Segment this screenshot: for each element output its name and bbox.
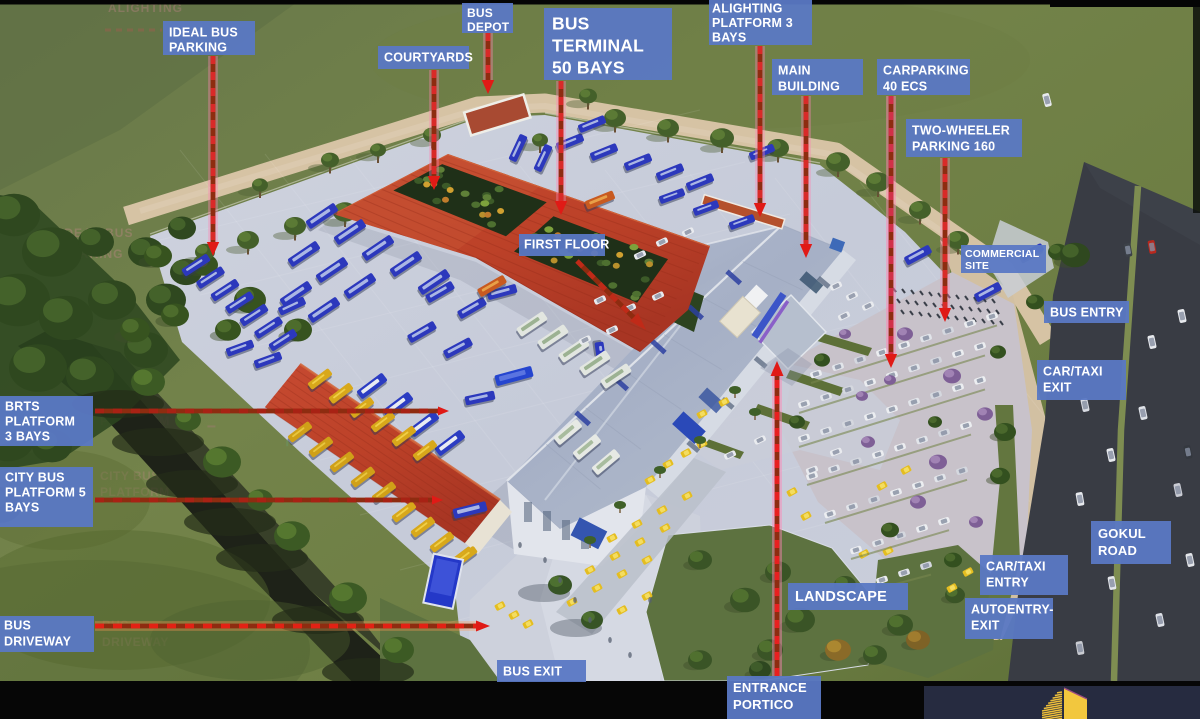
svg-text:CAR/TAXI: CAR/TAXI	[986, 560, 1046, 574]
svg-text:BUS: BUS	[467, 6, 493, 20]
svg-text:ALIGHTING: ALIGHTING	[712, 2, 783, 16]
svg-text:AUTOENTRY-: AUTOENTRY-	[971, 603, 1054, 617]
svg-text:BAYS: BAYS	[712, 31, 746, 45]
svg-text:BUS: BUS	[552, 13, 590, 33]
svg-text:COURTYARDS: COURTYARDS	[384, 51, 473, 65]
svg-text:SITE: SITE	[965, 260, 989, 272]
svg-text:FIRST FLOOR: FIRST FLOOR	[524, 238, 610, 252]
svg-text:ENTRY: ENTRY	[986, 576, 1029, 590]
svg-text:COMMERCIAL: COMMERCIAL	[965, 248, 1040, 260]
svg-text:BRTS: BRTS	[5, 400, 40, 414]
svg-text:BUS EXIT: BUS EXIT	[503, 665, 562, 679]
svg-text:TERMINAL: TERMINAL	[552, 35, 644, 55]
svg-text:GOKUL: GOKUL	[1098, 526, 1146, 541]
svg-text:PARKING 160: PARKING 160	[912, 140, 995, 154]
svg-text:BUS ENTRY: BUS ENTRY	[1050, 306, 1124, 320]
svg-text:CAR/TAXI: CAR/TAXI	[1043, 365, 1103, 379]
svg-text:CITY BUS: CITY BUS	[5, 471, 65, 485]
svg-text:TWO-WHEELER: TWO-WHEELER	[912, 124, 1010, 138]
svg-text:PLATFORM 5: PLATFORM 5	[5, 486, 86, 500]
svg-text:BUS: BUS	[4, 619, 31, 633]
svg-text:ENTRANCE: ENTRANCE	[733, 680, 807, 695]
svg-text:ROAD: ROAD	[1098, 543, 1137, 558]
svg-text:IDEAL BUS: IDEAL BUS	[169, 26, 238, 40]
svg-text:EXIT: EXIT	[971, 619, 1000, 633]
svg-text:PLATFORM 3: PLATFORM 3	[712, 16, 793, 30]
svg-text:40 ECS: 40 ECS	[883, 80, 927, 94]
svg-text:PARKING: PARKING	[169, 41, 227, 55]
svg-text:BUILDING: BUILDING	[778, 80, 840, 94]
svg-text:DEPOT: DEPOT	[467, 20, 510, 34]
svg-text:CARPARKING: CARPARKING	[883, 64, 969, 78]
svg-text:DRIVEWAY: DRIVEWAY	[4, 635, 72, 649]
svg-text:PORTICO: PORTICO	[733, 697, 794, 712]
svg-text:LANDSCAPE: LANDSCAPE	[795, 589, 887, 605]
svg-text:BAYS: BAYS	[5, 501, 39, 515]
svg-text:PLATFORM: PLATFORM	[5, 415, 75, 429]
svg-text:MAIN: MAIN	[778, 64, 811, 78]
svg-text:50 BAYS: 50 BAYS	[552, 57, 625, 77]
svg-text:EXIT: EXIT	[1043, 381, 1072, 395]
svg-text:3 BAYS: 3 BAYS	[5, 430, 50, 444]
